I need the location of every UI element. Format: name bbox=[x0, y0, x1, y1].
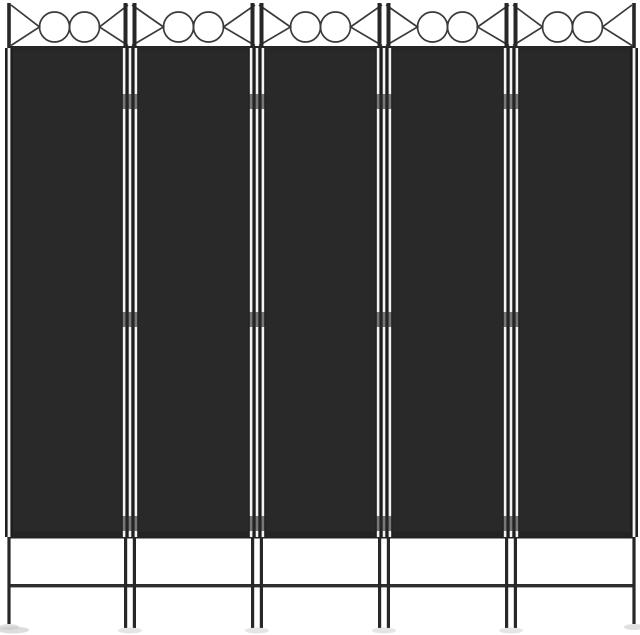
floor-shadow bbox=[372, 628, 396, 634]
pole-top-section bbox=[387, 3, 391, 48]
frame-pole-junction-4 bbox=[503, 3, 520, 628]
pole-leg bbox=[7, 537, 10, 624]
pole-top-section bbox=[514, 3, 518, 48]
pole-top-section bbox=[505, 3, 509, 48]
hinge bbox=[250, 516, 265, 531]
panel-leg-crossbar bbox=[511, 584, 634, 587]
pole-leg bbox=[124, 537, 127, 628]
pole-highlight bbox=[510, 48, 513, 537]
pole-leg bbox=[514, 537, 517, 628]
divider-panel-3 bbox=[257, 5, 384, 587]
hinge bbox=[377, 516, 392, 531]
panel-top-rail bbox=[257, 46, 384, 52]
panel-bottom-rail bbox=[511, 532, 634, 539]
panel-fabric bbox=[384, 48, 511, 537]
panel-leg-crossbar bbox=[257, 584, 384, 587]
hinge bbox=[504, 312, 519, 327]
pole-highlight bbox=[262, 48, 265, 537]
panel-fabric bbox=[257, 48, 384, 537]
frame-pole-right-edge bbox=[630, 3, 638, 624]
panel-fabric bbox=[9, 48, 130, 537]
hinge bbox=[123, 516, 138, 531]
pole-leg bbox=[632, 537, 635, 624]
divider-panel-2 bbox=[130, 5, 257, 587]
panel-top-rail bbox=[9, 46, 130, 52]
pole-highlight bbox=[633, 48, 636, 537]
pole-leg bbox=[260, 537, 263, 628]
pole-leg bbox=[251, 537, 254, 628]
pole-top-section bbox=[251, 3, 255, 48]
pole-highlight bbox=[516, 48, 519, 537]
divider-panel-1 bbox=[9, 5, 130, 587]
hinge bbox=[123, 312, 138, 327]
pole-top-section bbox=[378, 3, 382, 48]
frame-pole-junction-1 bbox=[122, 3, 139, 628]
pole-highlight bbox=[129, 48, 132, 537]
panel-top-rail bbox=[384, 46, 511, 52]
pole-leg bbox=[133, 537, 136, 628]
pole-highlight bbox=[250, 48, 253, 537]
frame-pole-junction-3 bbox=[376, 3, 393, 628]
pole-top-section bbox=[124, 3, 128, 48]
pole-highlight bbox=[377, 48, 380, 537]
pole-top-section bbox=[632, 3, 636, 48]
panel-top-rail bbox=[511, 46, 634, 52]
hinge bbox=[377, 94, 392, 109]
panel-fabric bbox=[511, 48, 634, 537]
pole-top-section bbox=[7, 3, 11, 48]
floor-shadow bbox=[245, 628, 269, 634]
room-divider-scene bbox=[0, 0, 640, 635]
divider-panel-5 bbox=[511, 5, 634, 587]
pole-highlight bbox=[135, 48, 138, 537]
frame-pole-junction-2 bbox=[249, 3, 266, 628]
pole-highlight bbox=[504, 48, 507, 537]
divider-panel-4 bbox=[384, 5, 511, 587]
panel-bottom-rail bbox=[9, 532, 130, 539]
room-divider-photo bbox=[0, 0, 640, 635]
hinge bbox=[504, 516, 519, 531]
pole-leg bbox=[387, 537, 390, 628]
hinge bbox=[250, 312, 265, 327]
panel-bottom-rail bbox=[257, 532, 384, 539]
panel-fabric bbox=[130, 48, 257, 537]
panel-leg-crossbar bbox=[9, 584, 130, 587]
pole-leg bbox=[505, 537, 508, 628]
pole-leg bbox=[378, 537, 381, 628]
pole-top-section bbox=[133, 3, 137, 48]
pole-highlight bbox=[8, 48, 11, 537]
hinge bbox=[504, 94, 519, 109]
pole-highlight bbox=[256, 48, 259, 537]
pole-highlight bbox=[383, 48, 386, 537]
hinge bbox=[123, 94, 138, 109]
panel-leg-crossbar bbox=[384, 584, 511, 587]
pole-highlight bbox=[389, 48, 392, 537]
frame-pole-left-edge bbox=[5, 3, 13, 624]
floor-shadow bbox=[499, 628, 523, 634]
hinge bbox=[377, 312, 392, 327]
panel-top-rail bbox=[130, 46, 257, 52]
panel-leg-crossbar bbox=[130, 584, 257, 587]
pole-highlight bbox=[123, 48, 126, 537]
floor-shadow bbox=[118, 628, 142, 634]
panel-bottom-rail bbox=[130, 532, 257, 539]
pole-top-section bbox=[260, 3, 264, 48]
panel-bottom-rail bbox=[384, 532, 511, 539]
hinge bbox=[250, 94, 265, 109]
